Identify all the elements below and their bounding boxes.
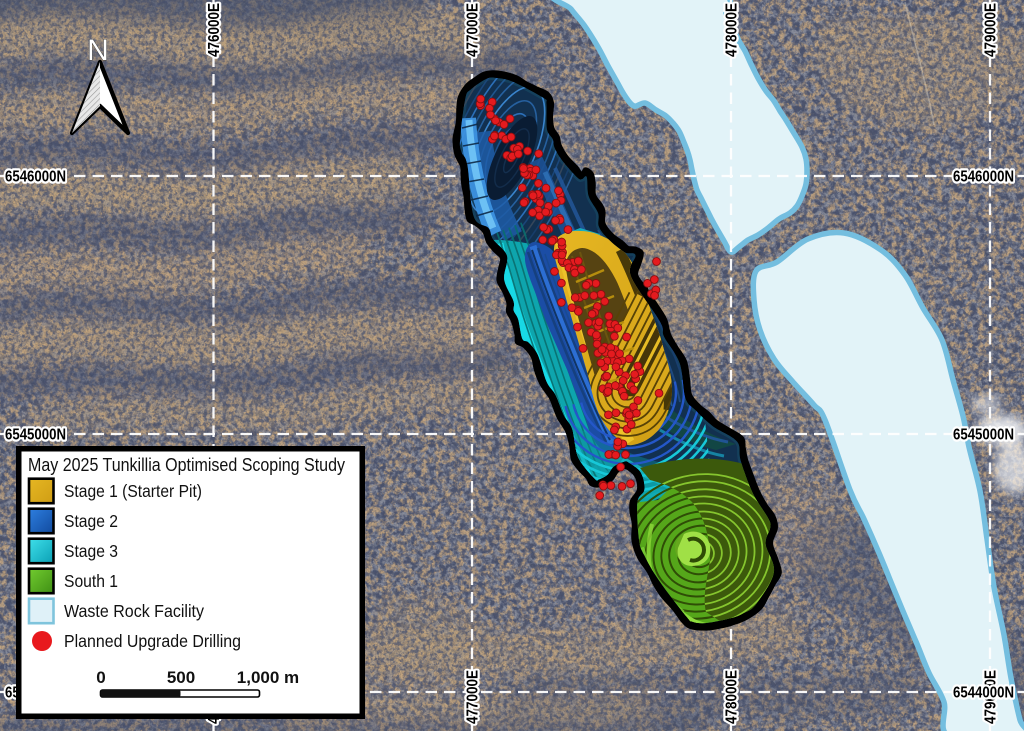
svg-text:Stage 3: Stage 3 (64, 541, 118, 561)
svg-text:477000E: 477000E (465, 670, 482, 724)
svg-text:Stage 2: Stage 2 (64, 511, 118, 531)
svg-text:Waste Rock Facility: Waste Rock Facility (64, 601, 204, 621)
svg-text:6544000N: 6544000N (953, 685, 1014, 702)
svg-text:476000E: 476000E (206, 3, 223, 57)
svg-text:478000E: 478000E (724, 670, 741, 724)
svg-text:EL 590: EL 590 (486, 358, 539, 374)
svg-text:May 2025 Tunkillia Optimised S: May 2025 Tunkillia Optimised Scoping Stu… (28, 455, 345, 475)
svg-text:479000E: 479000E (983, 3, 1000, 57)
svg-text:6545000N: 6545000N (5, 427, 66, 444)
svg-text:Stage 1 (Starter Pit): Stage 1 (Starter Pit) (64, 481, 202, 501)
svg-text:6546000N: 6546000N (5, 169, 66, 186)
svg-text:South 1: South 1 (64, 571, 118, 591)
svg-text:6545000N: 6545000N (953, 427, 1014, 444)
svg-text:Planned Upgrade Drilling: Planned Upgrade Drilling (64, 631, 241, 651)
svg-text:1,000 m: 1,000 m (237, 668, 299, 687)
svg-text:478000E: 478000E (724, 3, 741, 57)
svg-text:0: 0 (96, 668, 105, 687)
svg-text:500: 500 (167, 668, 195, 687)
svg-text:6546000N: 6546000N (953, 169, 1014, 186)
svg-text:477000E: 477000E (465, 3, 482, 57)
